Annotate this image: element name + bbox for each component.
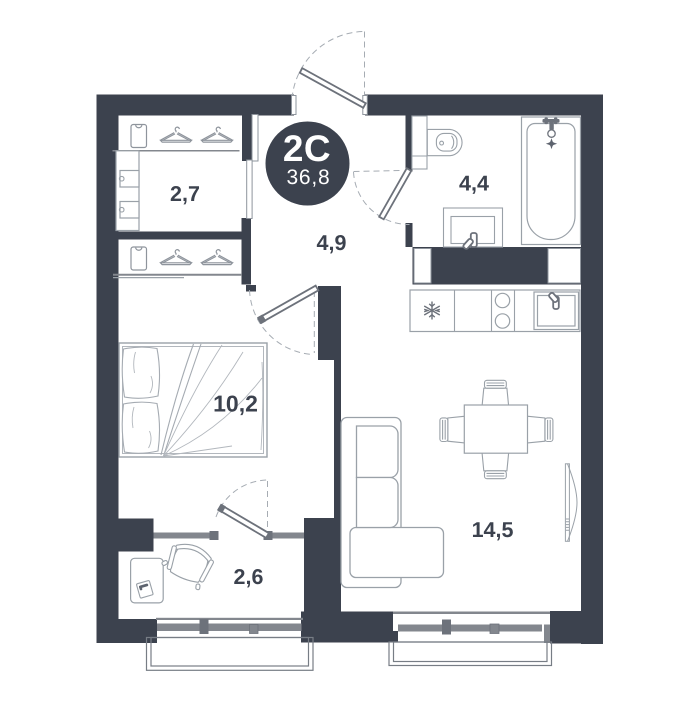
svg-text:2C: 2C bbox=[283, 128, 331, 169]
svg-text:10,2: 10,2 bbox=[213, 391, 258, 417]
svg-text:4,9: 4,9 bbox=[317, 231, 347, 255]
svg-text:36,8: 36,8 bbox=[286, 166, 330, 189]
svg-text:4,4: 4,4 bbox=[459, 172, 489, 196]
svg-text:2,6: 2,6 bbox=[234, 565, 264, 589]
svg-text:14,5: 14,5 bbox=[472, 518, 514, 542]
svg-text:2,7: 2,7 bbox=[170, 182, 200, 206]
